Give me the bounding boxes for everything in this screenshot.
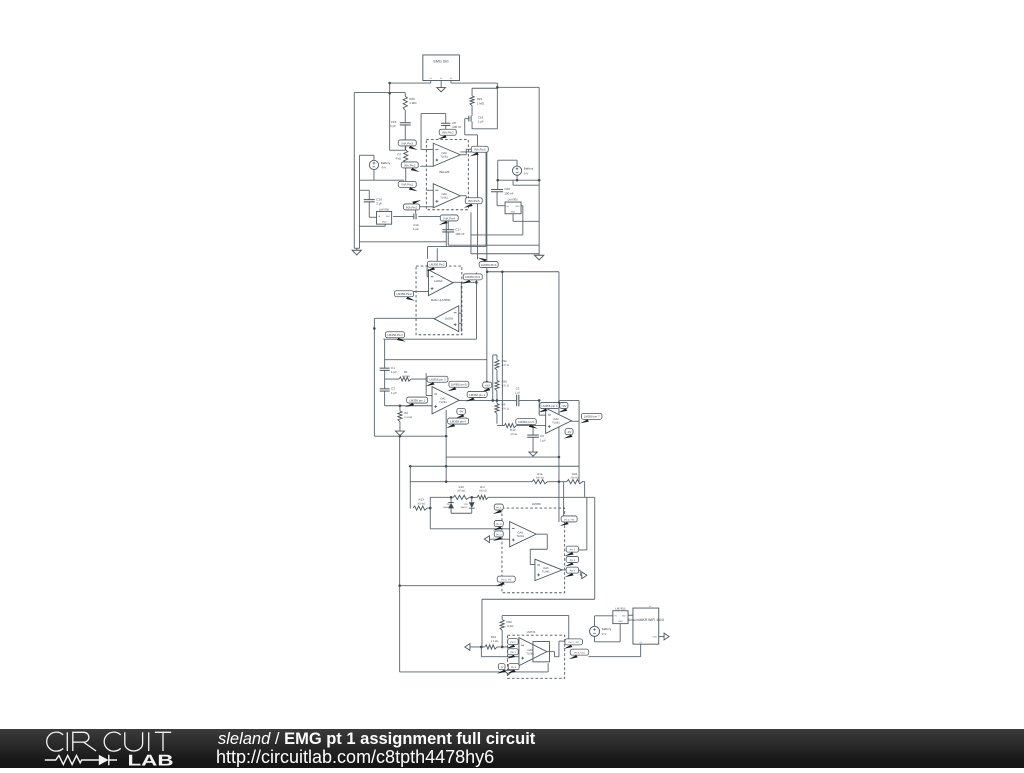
svg-text:LAB: LAB	[128, 752, 174, 768]
svg-text:R14: R14	[537, 472, 543, 476]
svg-text:R12: R12	[510, 428, 516, 432]
svg-text:470 Ω: 470 Ω	[502, 364, 509, 367]
svg-text:Pin 2: Pin 2	[496, 523, 502, 526]
svg-text:GND: GND	[618, 620, 623, 623]
svg-text:1 MΩ: 1 MΩ	[409, 101, 417, 105]
svg-text:INA.Pin6: INA.Pin6	[474, 148, 486, 152]
svg-text:200 kΩ: 200 kΩ	[417, 502, 425, 505]
svg-text:100 nF: 100 nF	[452, 125, 462, 129]
svg-text:Pin 5: Pin 5	[570, 569, 576, 572]
svg-text:LM358.Pin2: LM358.Pin2	[396, 292, 412, 296]
svg-text:Pin 3: Pin 3	[510, 651, 516, 654]
svg-text:R11: R11	[502, 359, 507, 363]
svg-text:R18: R18	[572, 472, 578, 476]
svg-text:INA.Pin2: INA.Pin2	[442, 131, 454, 135]
svg-text:TL081: TL081	[516, 535, 524, 538]
svg-text:LM7815: LM7815	[615, 607, 626, 611]
svg-text:200 kΩ: 200 kΩ	[571, 477, 579, 480]
svg-text:TL081: TL081	[552, 421, 560, 424]
svg-text:1 μF: 1 μF	[413, 227, 419, 231]
svg-text:9 V: 9 V	[524, 171, 529, 175]
svg-text:GND: GND	[382, 220, 387, 223]
svg-text:GND: GND	[653, 635, 658, 638]
svg-text:INA126: INA126	[439, 170, 450, 174]
svg-text:LM358.Pin2: LM358.Pin2	[429, 263, 445, 267]
svg-text:INA.Pin1: INA.Pin1	[402, 183, 414, 187]
svg-text:TL081: TL081	[440, 155, 448, 158]
svg-text:200 kΩ: 200 kΩ	[536, 477, 544, 480]
svg-text:+9V: +9V	[561, 404, 566, 408]
svg-text:INA.Pin2: INA.Pin2	[406, 205, 418, 209]
svg-text:P3: P3	[450, 77, 452, 80]
svg-text:INA.Pin3: INA.Pin3	[402, 141, 414, 145]
svg-text:LM358.Pin4: LM358.Pin4	[387, 333, 403, 337]
svg-text:EMG SIG: EMG SIG	[433, 60, 449, 64]
svg-text:R20: R20	[506, 620, 512, 624]
svg-text:10 kΩ: 10 kΩ	[506, 625, 513, 628]
svg-text:470 Ω: 470 Ω	[502, 384, 509, 387]
svg-text:LM7905: LM7905	[379, 207, 390, 211]
svg-text:LM358: LM358	[532, 502, 541, 506]
svg-text:Battery: Battery	[524, 167, 534, 171]
svg-text:-9V: -9V	[459, 410, 464, 414]
svg-text:-9V: -9V	[500, 666, 504, 669]
svg-text:Pin 6: Pin 6	[570, 559, 576, 562]
svg-text:100 nF: 100 nF	[455, 232, 465, 236]
svg-text:LM358.Pin1: LM358.Pin1	[465, 275, 481, 279]
svg-text:LM358.Pin3: LM358.Pin3	[481, 263, 497, 267]
svg-text:Pin 4, +9V: Pin 4, +9V	[564, 518, 575, 521]
svg-text:4 kΩ: 4 kΩ	[395, 157, 402, 161]
svg-text:Pin 4: Pin 4	[511, 666, 517, 669]
svg-text:1 μF: 1 μF	[391, 370, 397, 374]
svg-text:LM358: LM358	[445, 318, 454, 321]
svg-text:1 μF: 1 μF	[515, 391, 521, 394]
svg-text:LM741: LM741	[527, 630, 536, 634]
svg-text:R9: R9	[502, 403, 506, 407]
svg-text:P2: P2	[440, 77, 442, 80]
svg-text:TL081: TL081	[542, 571, 550, 574]
svg-text:R19: R19	[491, 635, 497, 639]
svg-text:5.1 kΩ: 5.1 kΩ	[404, 416, 412, 419]
svg-text:TL081: TL081	[439, 401, 447, 404]
svg-text:470 Ω: 470 Ω	[502, 407, 509, 410]
svg-text:3.3 kΩ: 3.3 kΩ	[402, 375, 410, 378]
svg-text:Buffer (LM358): Buffer (LM358)	[431, 298, 450, 302]
svg-text:GND: GND	[511, 211, 516, 214]
svg-text:200 kΩ: 200 kΩ	[457, 490, 465, 493]
svg-text:LM7905: LM7905	[508, 197, 519, 201]
svg-text:-9V: -9V	[567, 430, 572, 434]
svg-text:D3: D3	[464, 503, 468, 506]
svg-text:LM358 pin 7: LM358 pin 7	[584, 415, 600, 419]
svg-text:R16: R16	[459, 485, 465, 489]
svg-text:R2: R2	[404, 411, 408, 415]
svg-text:R10: R10	[502, 379, 508, 383]
svg-text:2 μF: 2 μF	[376, 202, 382, 206]
svg-text:LM358 pin 3: LM358 pin 3	[430, 378, 446, 382]
svg-text:Pin 7: Pin 7	[570, 548, 576, 551]
svg-text:LM358 pin 6: LM358 pin 6	[542, 404, 558, 408]
svg-text:INA.Pin5: INA.Pin5	[468, 199, 480, 203]
svg-text:TL081: TL081	[526, 652, 534, 655]
svg-text:P1: P1	[430, 77, 432, 80]
svg-text:1 μF: 1 μF	[540, 438, 546, 442]
svg-text:LM358: LM358	[434, 280, 443, 283]
svg-text:ArduinoMKR WIFI 1010: ArduinoMKR WIFI 1010	[628, 618, 664, 622]
svg-text:100 kΩ: 100 kΩ	[479, 490, 487, 493]
svg-text:Pin 6, Vout: Pin 6, Vout	[574, 651, 585, 654]
svg-text:R13: R13	[419, 497, 425, 501]
svg-text:1N4007: 1N4007	[443, 506, 451, 509]
svg-text:Battery: Battery	[602, 627, 612, 631]
svg-text:Pin 2: Pin 2	[510, 641, 516, 644]
svg-text:+9V: +9V	[485, 383, 490, 387]
svg-text:1N4007: 1N4007	[461, 506, 469, 509]
svg-text:R17: R17	[480, 485, 486, 489]
svg-text:1 μF: 1 μF	[390, 124, 396, 128]
svg-text:TL081: TL081	[440, 196, 448, 199]
svg-text:Pin 4, -9V: Pin 4, -9V	[501, 578, 512, 581]
svg-text:Pin 3: Pin 3	[496, 533, 502, 536]
svg-text:Pin 1: Pin 1	[496, 506, 502, 509]
svg-text:1 μF: 1 μF	[391, 391, 397, 395]
svg-text:1 μF: 1 μF	[478, 120, 484, 124]
svg-text:1 MΩ: 1 MΩ	[477, 101, 485, 105]
svg-text:LM358 pin 5: LM358 pin 5	[518, 420, 534, 424]
svg-text:R1: R1	[404, 370, 408, 374]
svg-text:A1: A1	[639, 641, 641, 644]
svg-text:LM358 pin 8: LM358 pin 8	[451, 383, 467, 387]
svg-text:Pin 7, +9V: Pin 7, +9V	[569, 641, 580, 644]
svg-text:Battery: Battery	[381, 161, 391, 165]
svg-text:5.1 kΩ: 5.1 kΩ	[491, 640, 499, 643]
svg-text:C5: C5	[516, 386, 520, 390]
svg-text:INA.Pin4: INA.Pin4	[444, 216, 456, 220]
svg-text:100 nF: 100 nF	[504, 191, 514, 195]
svg-text:LM358 pin 1: LM358 pin 1	[469, 393, 485, 397]
svg-text:-9 V: -9 V	[381, 166, 387, 170]
svg-text:LM358 pin 4: LM358 pin 4	[450, 419, 466, 423]
svg-text:INA.Pin2: INA.Pin2	[404, 163, 416, 167]
svg-text:470 Ω: 470 Ω	[510, 433, 517, 436]
svg-text:LM358 pin 1: LM358 pin 1	[409, 398, 425, 402]
svg-text:9 V: 9 V	[602, 632, 607, 636]
